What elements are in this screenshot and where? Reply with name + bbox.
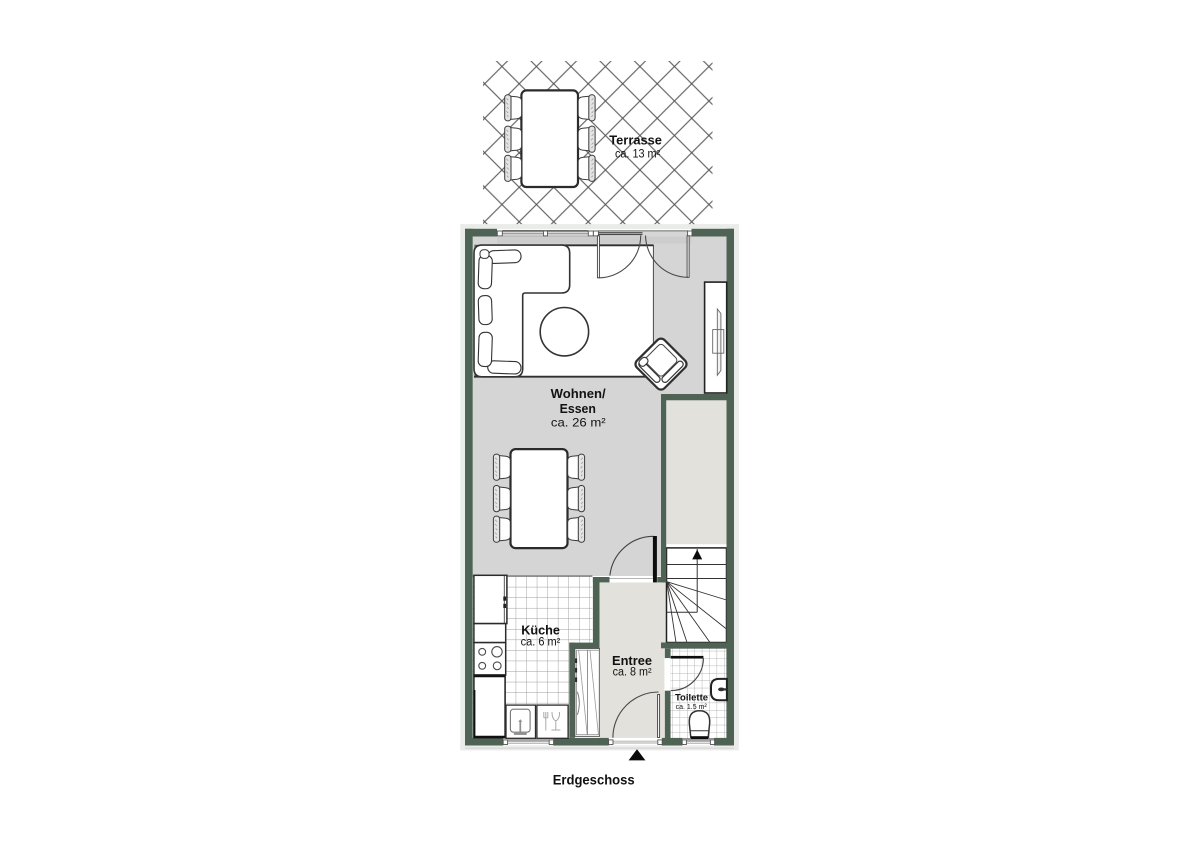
svg-text:ca. 26 m²: ca. 26 m² — [551, 416, 606, 430]
svg-text:ca. 1.5 m²: ca. 1.5 m² — [676, 702, 708, 711]
svg-text:Essen: Essen — [560, 401, 596, 416]
svg-text:Wohnen/: Wohnen/ — [551, 386, 606, 401]
svg-text:Terrasse: Terrasse — [609, 134, 662, 148]
svg-text:ca. 13 m²: ca. 13 m² — [615, 149, 660, 161]
svg-text:ca. 8 m²: ca. 8 m² — [613, 666, 652, 678]
svg-text:Erdgeschoss: Erdgeschoss — [553, 771, 635, 787]
svg-text:ca. 6 m²: ca. 6 m² — [521, 636, 561, 648]
